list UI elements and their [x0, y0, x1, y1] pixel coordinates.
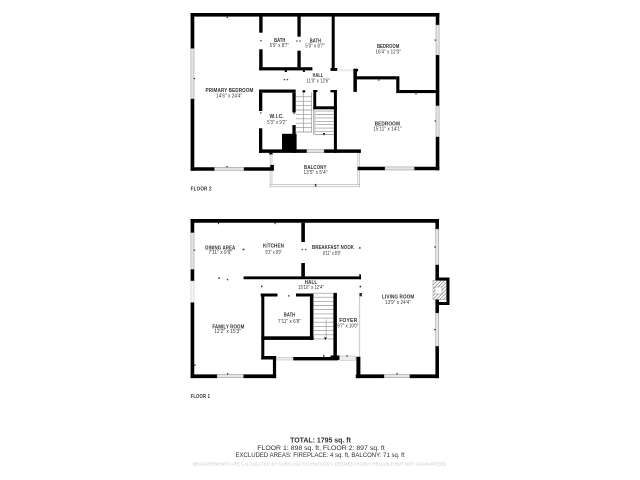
svg-text:KITCHEN: KITCHEN	[263, 243, 284, 249]
svg-text:11'0" x 12'6": 11'0" x 12'6"	[307, 78, 330, 84]
svg-text:MEASUREMENTS ARE CALCULATED BY: MEASUREMENTS ARE CALCULATED BY CUBICASA …	[193, 462, 448, 467]
svg-text:13'9" x 24'4": 13'9" x 24'4"	[385, 300, 411, 306]
svg-text:EXCLUDED AREAS: FIREPLACE: 4 s: EXCLUDED AREAS: FIREPLACE: 4 sq. ft, BAL…	[236, 452, 405, 459]
svg-text:15'10" x 12'4": 15'10" x 12'4"	[298, 285, 324, 291]
svg-text:13'5" x 5'4": 13'5" x 5'4"	[304, 170, 328, 176]
svg-text:9'3" x 8'9": 9'3" x 8'9"	[265, 250, 282, 256]
svg-text:5'3" x 9'2": 5'3" x 9'2"	[267, 120, 287, 126]
svg-text:TOTAL: 1795 sq. ft: TOTAL: 1795 sq. ft	[290, 438, 352, 445]
svg-text:15'11" x 14'1": 15'11" x 14'1"	[373, 127, 402, 133]
svg-text:9'7" x 10'0": 9'7" x 10'0"	[337, 324, 358, 330]
svg-text:5'0" x 8'7": 5'0" x 8'7"	[305, 43, 324, 49]
svg-text:7'11" x 6'8": 7'11" x 6'8"	[278, 319, 301, 325]
svg-text:FLOOR 1: FLOOR 1	[191, 394, 211, 400]
svg-text:14'6" x 24'4": 14'6" x 24'4"	[216, 93, 242, 99]
svg-text:8'11" x 8'9": 8'11" x 8'9"	[323, 251, 341, 257]
svg-text:BATH: BATH	[284, 313, 296, 319]
svg-text:16'4" x 12'0": 16'4" x 12'0"	[376, 49, 401, 55]
svg-text:7'11" x 9'9": 7'11" x 9'9"	[208, 250, 232, 256]
svg-text:5'9" x 8'7": 5'9" x 8'7"	[270, 43, 289, 49]
svg-text:FLOOR 1: 898 sq. ft, FLOOR 2:: FLOOR 1: 898 sq. ft, FLOOR 2: 897 sq. ft	[257, 445, 385, 452]
svg-text:FLOOR 2: FLOOR 2	[191, 187, 212, 193]
svg-text:12'2" x 15'3": 12'2" x 15'3"	[214, 329, 241, 335]
